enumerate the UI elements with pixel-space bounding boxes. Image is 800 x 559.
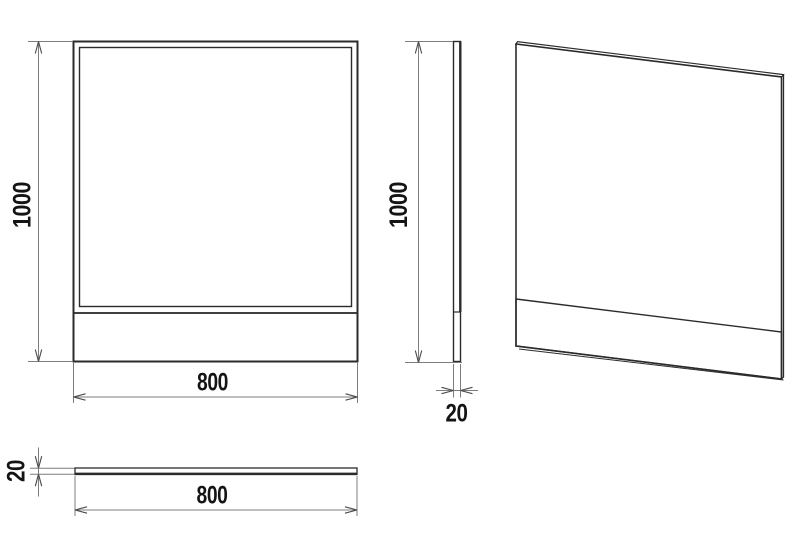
front-width-dimension: 800 <box>74 363 358 403</box>
front-width-label: 800 <box>197 369 228 397</box>
top-thickness-label: 20 <box>3 460 31 482</box>
side-height-label: 1000 <box>385 182 413 228</box>
front-height-label: 1000 <box>9 182 37 228</box>
side-thickness-label: 20 <box>446 400 468 428</box>
perspective-view <box>516 42 784 380</box>
side-view: 1000 20 <box>385 42 478 428</box>
top-thickness-dimension: 20 <box>3 448 75 497</box>
front-height-dimension: 1000 <box>9 42 74 362</box>
technical-drawing-canvas: 1000 800 1000 20 <box>0 0 800 559</box>
perspective-face <box>516 44 782 379</box>
top-width-label: 800 <box>197 482 228 510</box>
top-width-dimension: 800 <box>75 476 357 516</box>
technical-drawing: 1000 800 1000 20 <box>0 0 800 559</box>
top-view: 20 800 <box>3 448 358 517</box>
side-height-dimension: 1000 <box>385 42 462 363</box>
side-thickness-dimension: 20 <box>436 364 478 428</box>
front-view: 1000 800 <box>9 42 358 404</box>
